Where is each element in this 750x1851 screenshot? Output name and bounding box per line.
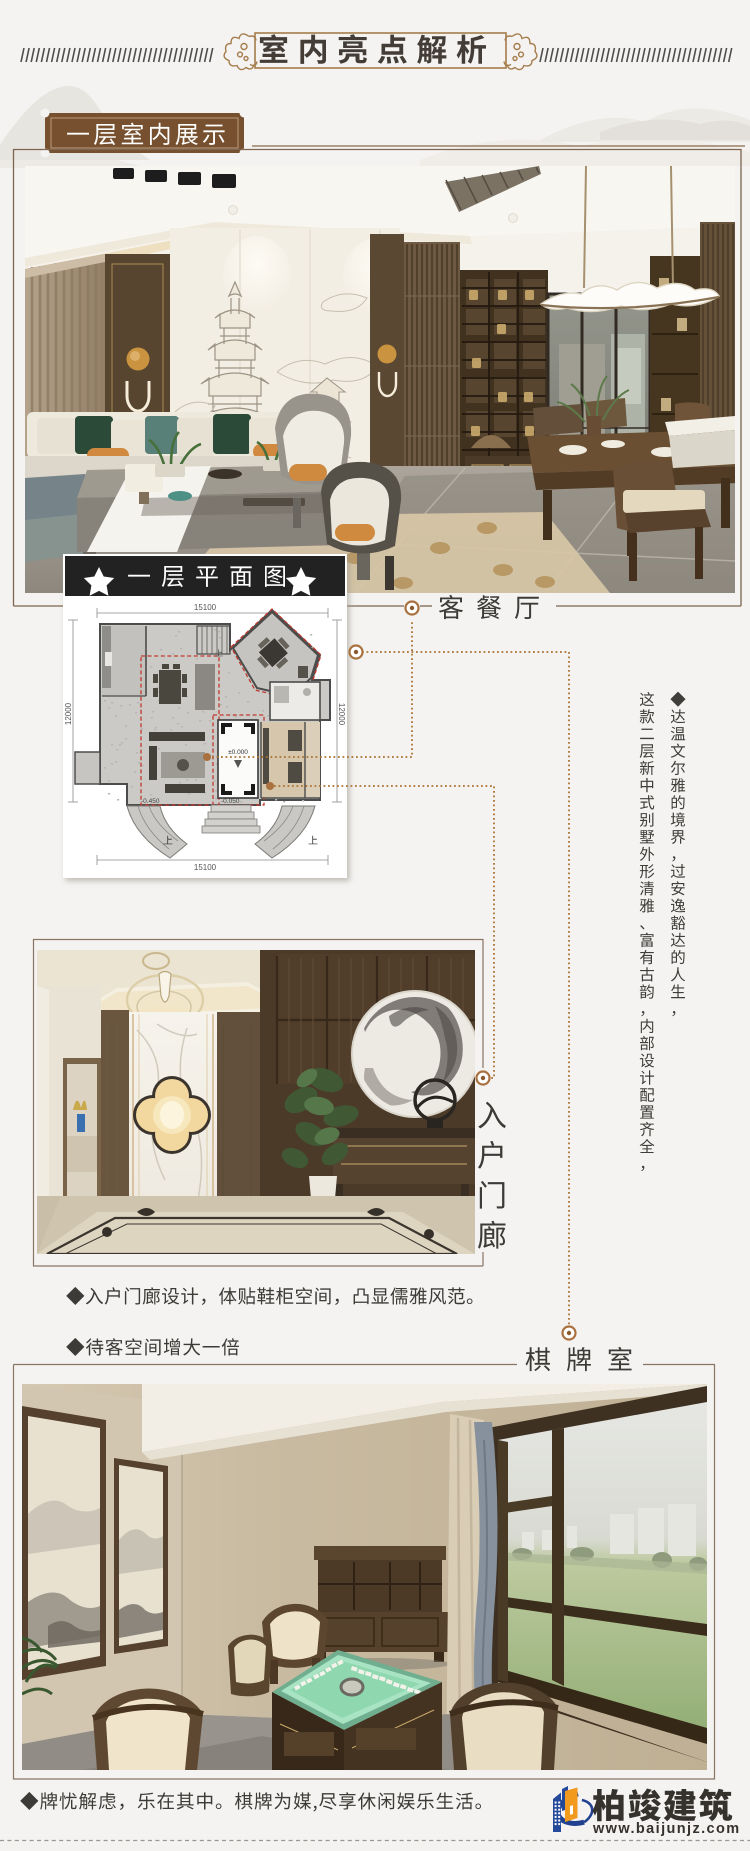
svg-text:-0.450: -0.450	[141, 798, 160, 805]
svg-text:15100: 15100	[194, 603, 217, 612]
svg-text:±0.000: ±0.000	[228, 749, 248, 756]
svg-text:12000: 12000	[337, 703, 346, 726]
svg-text:15100: 15100	[194, 863, 217, 872]
svg-text:www.baijunjz.com: www.baijunjz.com	[592, 1821, 741, 1837]
svg-text:-0.050: -0.050	[221, 798, 240, 805]
svg-text:12000: 12000	[64, 702, 73, 725]
